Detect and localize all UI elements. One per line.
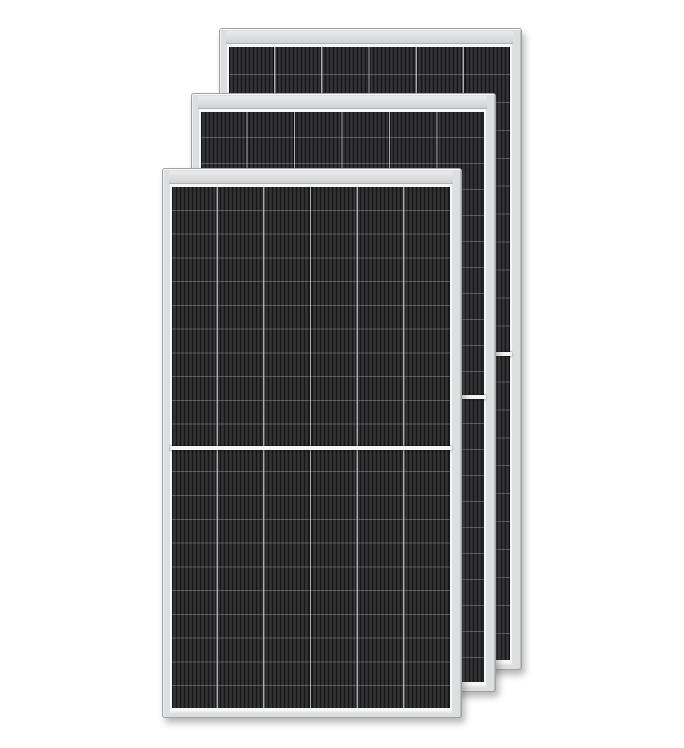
product-image-solar-panels [0,0,684,748]
panel-top-frame-rail [226,31,513,44]
half-cell-divider [170,446,452,450]
solar-panel-front [162,168,462,718]
panel-bottom-frame-rail [169,711,453,715]
panel-top-frame-rail [198,96,487,109]
solar-cell-grid [170,184,452,711]
panel-top-frame-rail [169,171,453,184]
